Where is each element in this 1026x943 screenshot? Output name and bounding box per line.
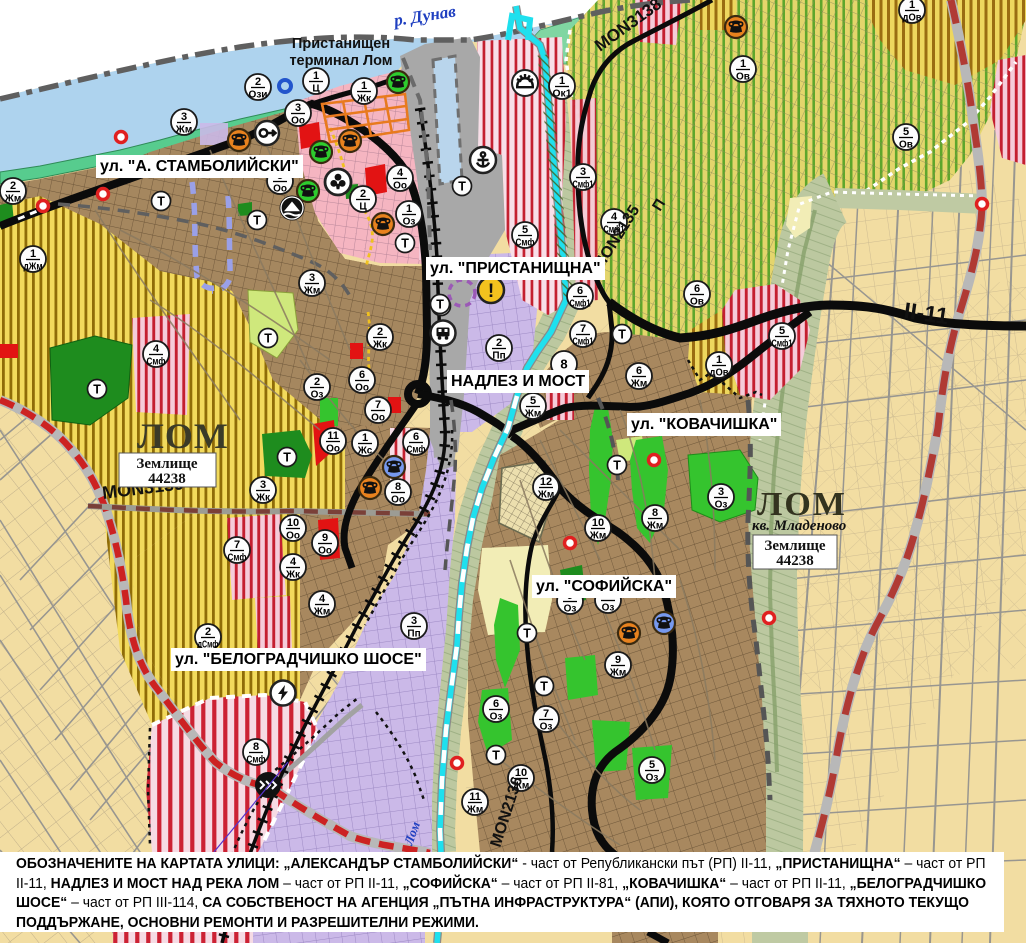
svg-text:Жм: Жм: [646, 521, 663, 532]
svg-text:7: 7: [580, 323, 586, 335]
svg-text:Жм: Жм: [313, 607, 330, 618]
svg-text:Землище: Землище: [764, 538, 826, 554]
svg-text:Оо: Оо: [371, 413, 385, 424]
svg-text:Т: Т: [613, 459, 621, 473]
svg-text:кв. Младеново: кв. Младеново: [752, 518, 846, 534]
svg-text:9: 9: [615, 654, 621, 666]
svg-text:Жм: Жм: [589, 531, 606, 542]
svg-text:4: 4: [397, 167, 404, 179]
svg-text:Т: Т: [458, 180, 466, 194]
svg-text:6: 6: [636, 365, 642, 377]
svg-text:1: 1: [909, 0, 915, 11]
svg-text:Жк: Жк: [372, 340, 388, 351]
svg-text:Ц: Ц: [312, 84, 320, 95]
svg-text:Оз: Оз: [311, 390, 324, 401]
svg-text:Пристанищен: Пристанищен: [292, 36, 390, 52]
svg-text:3: 3: [309, 272, 315, 284]
svg-text:Жк: Жк: [255, 493, 271, 504]
svg-text:Смф: Смф: [407, 444, 426, 456]
svg-text:Пп: Пп: [492, 351, 505, 362]
svg-text:5: 5: [649, 759, 655, 771]
svg-text:Ов: Ов: [690, 297, 704, 308]
svg-text:7: 7: [543, 708, 549, 720]
svg-text:1: 1: [362, 432, 368, 444]
svg-text:Жм: Жм: [466, 805, 483, 816]
svg-text:2: 2: [360, 188, 366, 200]
svg-text:3: 3: [580, 166, 586, 178]
svg-text:Смф1: Смф1: [570, 298, 591, 310]
svg-text:1: 1: [406, 203, 412, 215]
svg-text:Оо: Оо: [326, 444, 340, 455]
svg-text:6: 6: [493, 698, 499, 710]
svg-text:Смф: Смф: [247, 754, 266, 766]
svg-text:Смф1: Смф1: [573, 336, 594, 348]
svg-text:Оо: Оо: [286, 531, 300, 542]
svg-text:Оз: Оз: [540, 722, 553, 733]
svg-text:Оз: Оз: [564, 604, 577, 615]
svg-text:6: 6: [413, 431, 419, 443]
svg-text:Оо: Оо: [291, 116, 305, 127]
svg-text:Жк: Жк: [356, 94, 372, 105]
svg-text:Т: Т: [93, 383, 101, 397]
svg-text:7: 7: [375, 399, 381, 411]
svg-text:11: 11: [469, 791, 481, 803]
svg-text:Т: Т: [436, 298, 444, 312]
svg-text:Оо: Оо: [355, 383, 369, 394]
svg-text:3: 3: [411, 615, 417, 627]
svg-text:!: !: [488, 281, 494, 302]
svg-text:1: 1: [559, 75, 565, 87]
svg-text:Жм: Жм: [4, 194, 21, 205]
svg-text:Т: Т: [401, 237, 409, 251]
svg-text:терминал Лом: терминал Лом: [289, 53, 392, 69]
svg-text:Т: Т: [540, 680, 548, 694]
svg-text:дОв: дОв: [710, 368, 729, 379]
svg-text:Смф1: Смф1: [573, 179, 594, 191]
svg-text:ЛОМ: ЛОМ: [137, 416, 229, 456]
svg-text:2: 2: [10, 180, 16, 192]
svg-text:6: 6: [359, 369, 365, 381]
svg-text:3: 3: [718, 486, 724, 498]
svg-text:1: 1: [313, 70, 319, 82]
svg-text:44238: 44238: [776, 553, 814, 569]
svg-text:Оз: Оз: [602, 603, 615, 614]
svg-text:Ози: Ози: [249, 90, 268, 101]
svg-text:4: 4: [319, 593, 326, 605]
svg-text:5: 5: [530, 395, 536, 407]
svg-text:Жм: Жм: [524, 409, 541, 420]
svg-text:5: 5: [903, 126, 909, 138]
svg-text:5: 5: [522, 224, 528, 236]
svg-text:дЖм: дЖм: [24, 262, 43, 273]
svg-text:Оо: Оо: [393, 181, 407, 192]
svg-text:Пп: Пп: [407, 629, 420, 640]
svg-text:Оз: Оз: [490, 712, 503, 723]
svg-text:дОв: дОв: [903, 13, 922, 24]
svg-text:Т: Т: [618, 328, 626, 342]
svg-text:3: 3: [260, 479, 266, 491]
svg-text:Жм: Жм: [175, 125, 192, 136]
svg-text:Т: Т: [492, 749, 500, 763]
svg-text:Жм: Жм: [630, 379, 647, 390]
svg-text:6: 6: [694, 283, 700, 295]
svg-text:Т: Т: [157, 195, 165, 209]
svg-text:Т: Т: [253, 214, 261, 228]
svg-text:Смф: Смф: [147, 356, 166, 368]
svg-text:Жс: Жс: [357, 446, 373, 457]
svg-text:Т: Т: [283, 451, 291, 465]
svg-text:Ц: Ц: [359, 202, 367, 213]
svg-text:2: 2: [496, 337, 502, 349]
svg-text:11: 11: [327, 430, 339, 442]
svg-text:Жм: Жм: [303, 286, 320, 297]
svg-text:Оо: Оо: [318, 546, 332, 557]
svg-text:5: 5: [779, 325, 785, 337]
svg-text:8: 8: [253, 741, 259, 753]
svg-text:3: 3: [295, 102, 301, 114]
svg-text:6: 6: [577, 285, 583, 297]
svg-text:1: 1: [716, 354, 722, 366]
svg-text:9: 9: [322, 532, 328, 544]
svg-text:Ок1: Ок1: [553, 89, 572, 100]
svg-text:2: 2: [255, 76, 261, 88]
svg-text:Жк: Жк: [285, 570, 301, 581]
svg-text:2: 2: [314, 376, 320, 388]
svg-text:Т: Т: [264, 332, 272, 346]
svg-text:1: 1: [30, 248, 36, 260]
svg-text:Т: Т: [523, 627, 531, 641]
svg-text:Оо: Оо: [273, 184, 287, 195]
svg-text:Ов: Ов: [899, 140, 913, 151]
svg-text:8: 8: [395, 481, 401, 493]
svg-text:Жм: Жм: [537, 490, 554, 501]
svg-text:Ов: Ов: [736, 72, 750, 83]
svg-text:2: 2: [377, 326, 383, 338]
svg-text:Оз: Оз: [403, 217, 416, 228]
svg-text:12: 12: [540, 476, 552, 488]
svg-text:Жм: Жм: [609, 668, 626, 679]
svg-text:Землище: Землище: [136, 456, 198, 472]
svg-text:44238: 44238: [148, 471, 186, 487]
svg-text:3: 3: [181, 111, 187, 123]
svg-text:Смф: Смф: [228, 552, 247, 564]
svg-text:10: 10: [287, 517, 299, 529]
svg-text:1: 1: [361, 80, 367, 92]
svg-text:2: 2: [205, 626, 211, 638]
svg-text:1: 1: [740, 58, 746, 70]
svg-text:7: 7: [234, 539, 240, 551]
svg-text:8: 8: [652, 507, 658, 519]
svg-text:10: 10: [592, 517, 604, 529]
svg-text:4: 4: [290, 556, 297, 568]
svg-text:Оз: Оз: [715, 500, 728, 511]
svg-text:4: 4: [153, 343, 160, 355]
svg-text:Смф: Смф: [516, 237, 535, 249]
svg-text:Оз: Оз: [646, 773, 659, 784]
svg-text:Оо: Оо: [391, 495, 405, 506]
svg-text:Смф1: Смф1: [772, 338, 793, 350]
